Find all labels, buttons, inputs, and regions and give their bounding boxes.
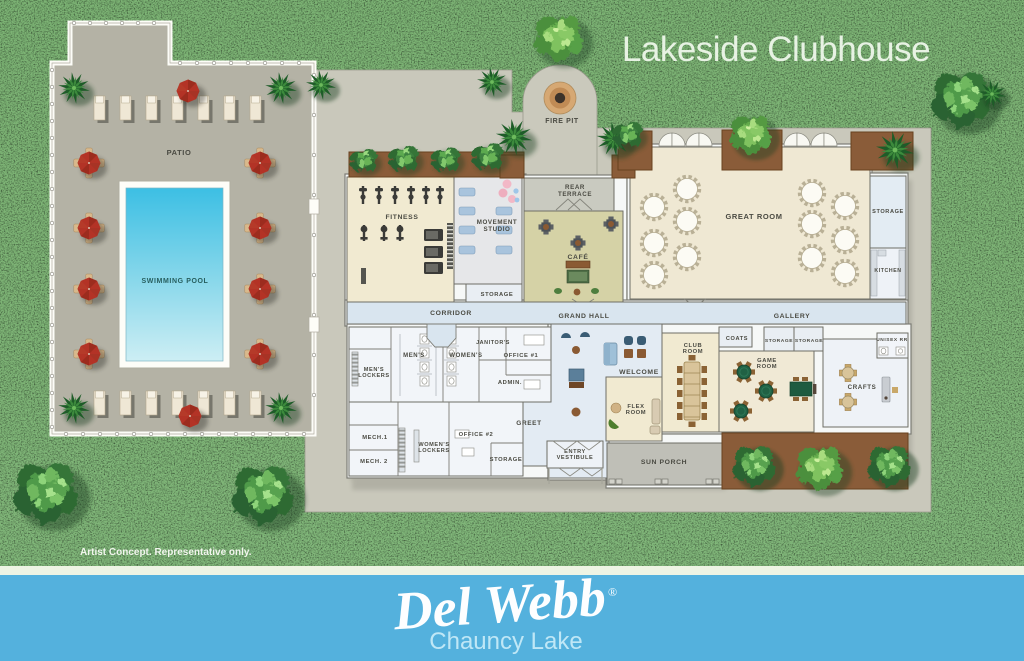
svg-text:SUN PORCH: SUN PORCH xyxy=(641,459,687,466)
svg-text:LOCKERS: LOCKERS xyxy=(418,448,450,454)
svg-text:ROOM: ROOM xyxy=(757,364,777,370)
svg-text:GREET: GREET xyxy=(516,420,541,427)
svg-text:CLUB: CLUB xyxy=(684,343,703,349)
svg-text:GRAND HALL: GRAND HALL xyxy=(559,313,610,320)
svg-text:MEN'S: MEN'S xyxy=(364,367,385,373)
svg-text:STORAGE: STORAGE xyxy=(481,292,514,298)
svg-text:FITNESS: FITNESS xyxy=(386,214,419,221)
svg-text:STORAGE: STORAGE xyxy=(795,338,823,344)
svg-text:LOCKERS: LOCKERS xyxy=(358,373,390,379)
svg-text:MECH. 2: MECH. 2 xyxy=(360,459,388,465)
svg-text:CORRIDOR: CORRIDOR xyxy=(430,310,472,317)
svg-text:GALLERY: GALLERY xyxy=(774,313,810,320)
svg-text:Lakeside Clubhouse: Lakeside Clubhouse xyxy=(622,30,930,69)
svg-text:SWIMMING POOL: SWIMMING POOL xyxy=(142,278,209,285)
svg-text:ADMIN.: ADMIN. xyxy=(498,380,522,386)
svg-text:®: ® xyxy=(608,585,617,599)
svg-text:WOMEN'S: WOMEN'S xyxy=(418,442,449,448)
svg-text:OFFICE #2: OFFICE #2 xyxy=(459,432,494,438)
svg-text:OFFICE #1: OFFICE #1 xyxy=(504,353,539,359)
svg-text:GAME: GAME xyxy=(757,358,777,364)
svg-text:MOVEMENT: MOVEMENT xyxy=(477,219,518,226)
svg-text:CRAFTS: CRAFTS xyxy=(848,384,877,391)
svg-text:FLEX: FLEX xyxy=(627,404,644,410)
svg-text:WOMEN'S: WOMEN'S xyxy=(449,353,482,359)
svg-text:STORAGE: STORAGE xyxy=(765,338,793,344)
svg-text:JANITOR'S: JANITOR'S xyxy=(476,340,510,346)
svg-text:MEN'S: MEN'S xyxy=(403,353,425,359)
svg-text:Artist Concept. Representative: Artist Concept. Representative only. xyxy=(80,547,252,558)
svg-text:ENTRY: ENTRY xyxy=(564,449,586,455)
svg-text:VESTIBULE: VESTIBULE xyxy=(557,455,594,461)
svg-text:CAFÉ: CAFÉ xyxy=(568,252,589,261)
svg-text:WELCOME: WELCOME xyxy=(619,369,659,376)
svg-text:STORAGE: STORAGE xyxy=(872,209,904,215)
svg-text:UNISEX RR: UNISEX RR xyxy=(876,337,908,343)
svg-text:ROOM: ROOM xyxy=(683,349,703,355)
svg-text:KITCHEN: KITCHEN xyxy=(874,268,901,274)
svg-text:STORAGE: STORAGE xyxy=(490,457,523,463)
svg-text:PATIO: PATIO xyxy=(167,148,192,157)
svg-text:MECH.1: MECH.1 xyxy=(362,435,388,441)
svg-text:ROOM: ROOM xyxy=(626,410,646,416)
svg-text:TERRACE: TERRACE xyxy=(558,191,592,198)
svg-text:REAR: REAR xyxy=(565,184,585,191)
svg-text:GREAT ROOM: GREAT ROOM xyxy=(725,212,782,221)
svg-text:STUDIO: STUDIO xyxy=(484,226,511,233)
svg-text:COATS: COATS xyxy=(726,336,748,342)
svg-text:FIRE PIT: FIRE PIT xyxy=(545,118,579,125)
svg-text:Chauncy Lake: Chauncy Lake xyxy=(429,628,582,655)
